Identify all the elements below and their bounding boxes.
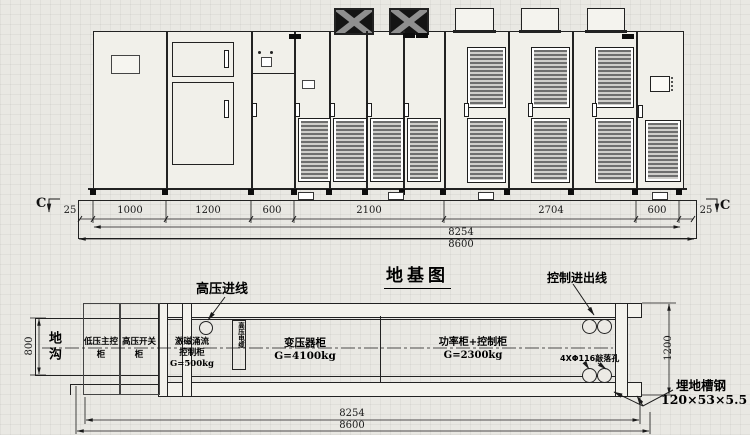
hv-switch-cabinet-line2: 柜	[122, 350, 156, 360]
louver-vent-panel	[531, 47, 570, 108]
base-line	[88, 188, 687, 190]
label-window	[302, 80, 315, 89]
base-slot	[478, 192, 494, 200]
louver-vent-panel	[467, 118, 506, 183]
drawing-title: 地基图	[384, 261, 451, 289]
base-foot	[362, 189, 368, 195]
roof-vent-box	[455, 8, 494, 33]
lv-main-cabinet-line1: 低压主控	[84, 337, 118, 347]
hmi-screen	[650, 76, 670, 92]
indicator-dot	[270, 51, 273, 54]
door-handle	[528, 103, 533, 117]
power-cabinet-name: 功率柜+控制柜	[439, 337, 507, 348]
plan-total-outer: 8600	[339, 421, 364, 431]
hv-cable-duct-label: 高压电缆	[234, 322, 244, 368]
knockout-hole	[582, 368, 597, 383]
channel-steel-label: 埋地槽钢	[676, 379, 726, 393]
indicator-dot	[671, 85, 673, 87]
control-window	[261, 57, 272, 67]
indicator-dot	[671, 89, 673, 91]
nameplate	[622, 34, 634, 39]
nameplate	[403, 33, 415, 38]
louver-vent-panel	[407, 118, 441, 182]
roof-vent-box	[521, 8, 559, 33]
section-marker-right: C	[720, 198, 730, 213]
roof-fan-unit	[389, 8, 429, 35]
cabinet-boundary-line	[166, 31, 168, 188]
frame-inner-line	[158, 319, 615, 320]
nameplate	[289, 34, 301, 39]
cabinet-boundary-line	[572, 31, 574, 188]
door-handle	[295, 103, 300, 117]
knockout-hole	[597, 368, 612, 383]
base-slot	[298, 192, 314, 200]
base-slot	[388, 192, 404, 200]
power-cabinet-label: 功率柜+控制柜 G=2300kg	[439, 337, 507, 361]
base-foot	[632, 189, 638, 195]
cabinet-lower-door	[172, 82, 234, 165]
louver-vent-panel	[531, 118, 570, 183]
trench-width-dim: 800	[25, 334, 35, 358]
excitation-cabinet-label: 激磁涌流 控制柜 G=500kg	[170, 337, 214, 369]
control-cable-hole	[582, 319, 597, 334]
louver-vent-panel	[595, 47, 634, 108]
base-foot	[568, 189, 574, 195]
knockout-holes-label: 4XΦ116敲落孔	[560, 354, 619, 364]
section-c-marker-left	[49, 199, 60, 212]
cabinet-display-panel	[111, 55, 140, 74]
door-handle	[330, 103, 335, 117]
indicator-dot	[671, 81, 673, 83]
hv-incoming-label: 高压进线	[196, 283, 248, 297]
foundation-drawing: C C 8254 8600 地基图 高压电缆 高压进线 控制进出线 地沟 800…	[0, 0, 750, 435]
door-handle	[367, 103, 372, 117]
louver-vent-panel	[645, 120, 681, 182]
dim-segment-label: 600	[647, 206, 666, 216]
door-handle	[464, 103, 469, 117]
foundation-step-line	[70, 384, 71, 395]
dim-segment-label: 600	[262, 206, 281, 216]
louver-vent-panel	[370, 118, 404, 182]
dim-segment-label: 25	[700, 206, 713, 216]
door-handle	[224, 50, 229, 68]
plan-total-inner: 8254	[339, 409, 364, 419]
louver-vent-panel	[595, 118, 634, 183]
nameplate	[416, 33, 428, 38]
base-foot	[504, 189, 510, 195]
base-foot	[676, 189, 682, 195]
cross-member	[615, 303, 628, 397]
base-slot	[652, 192, 668, 200]
control-io-label: 控制进出线	[547, 271, 607, 285]
louver-vent-panel	[298, 118, 331, 182]
base-foot	[90, 189, 96, 195]
cabinet-boundary-line	[508, 31, 510, 188]
trench-label: 地沟	[45, 331, 61, 371]
indicator-dot	[671, 77, 673, 79]
plan-depth-dim: 1200	[664, 333, 674, 363]
channel-steel-spec: 120×53×5.5	[661, 393, 747, 407]
dim-segment-label: 25	[64, 206, 77, 216]
door-handle	[592, 103, 597, 117]
door-handle	[404, 103, 409, 117]
base-foot	[440, 189, 446, 195]
power-cabinet-weight: G=2300kg	[439, 350, 507, 361]
elevation-total-inner: 8254	[448, 228, 473, 238]
transformer-cabinet-name: 变压器柜	[274, 338, 336, 349]
dim-segment-label: 2704	[538, 206, 563, 216]
excitation-cabinet-line1: 激磁涌流	[170, 337, 214, 347]
hv-switch-cabinet-label: 高压开关 柜	[122, 337, 156, 360]
indicator-dot	[258, 51, 261, 54]
section-marker-left: C	[36, 196, 46, 211]
door-handle	[638, 105, 643, 118]
base-foot	[162, 189, 168, 195]
door-handle	[224, 100, 229, 118]
door-handle	[252, 103, 257, 117]
foundation-outline	[78, 200, 697, 239]
louver-vent-panel	[333, 118, 367, 182]
frame-inner-line	[158, 376, 615, 377]
hv-switch-cabinet-line1: 高压开关	[122, 337, 156, 347]
dim-segment-label: 1000	[117, 206, 142, 216]
lv-main-cabinet-line2: 柜	[84, 350, 118, 360]
base-foot	[291, 189, 297, 195]
section-divider-line	[380, 316, 381, 382]
roof-fan-unit	[334, 8, 374, 35]
louver-vent-panel	[467, 47, 506, 108]
top-rail-channel	[158, 303, 642, 318]
channel-steel-leader	[637, 396, 643, 406]
bottom-rail-channel	[158, 382, 642, 397]
trench-left-edge	[35, 318, 36, 376]
excitation-cabinet-line2: 控制柜	[170, 348, 214, 358]
lv-main-cabinet-label: 低压主控 柜	[84, 337, 118, 360]
cabinet-boundary-line	[444, 31, 446, 188]
base-foot	[326, 189, 332, 195]
roof-vent-box	[587, 8, 625, 33]
transformer-cabinet-weight: G=4100kg	[274, 351, 336, 362]
transformer-cabinet-label: 变压器柜 G=4100kg	[274, 338, 336, 362]
hv-cable-hole	[199, 321, 213, 335]
dim-segment-label: 2100	[356, 206, 381, 216]
dim-segment-label: 1200	[195, 206, 220, 216]
control-cable-hole	[597, 319, 612, 334]
elevation-total-outer: 8600	[448, 240, 473, 250]
excitation-cabinet-weight: G=500kg	[170, 359, 214, 369]
cabinet-divider-line	[251, 73, 294, 74]
base-foot	[248, 189, 254, 195]
